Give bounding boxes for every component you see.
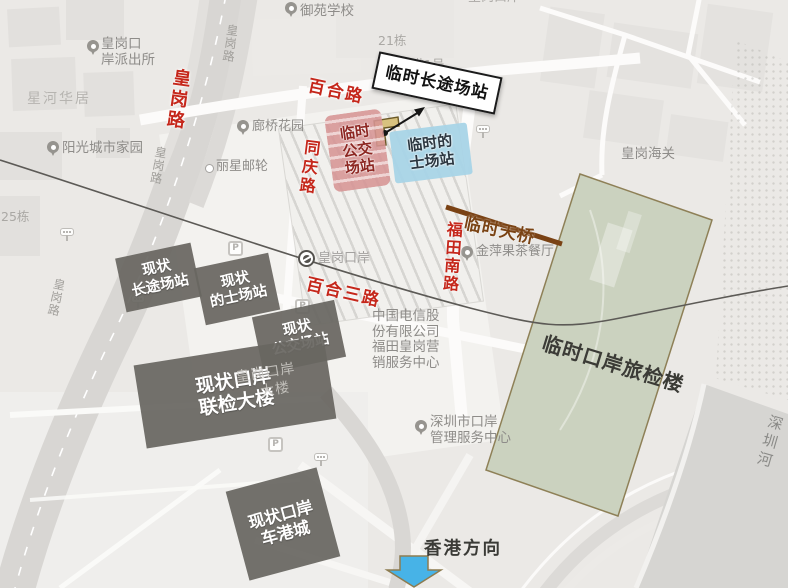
yangguang-label: 阳光城市家园	[62, 140, 143, 156]
current-carport-box: 现状口岸 车港城	[226, 467, 341, 580]
school-pin-icon	[285, 2, 297, 14]
xinghe-label: 星河华居	[27, 91, 91, 108]
port-admin-pin-icon	[415, 420, 427, 432]
temp-taxi-station-box: 临时的 士场站	[389, 122, 473, 183]
huanggang-road-label-gray: 皇岗路	[147, 145, 171, 186]
telecom-line1: 中国电信股	[372, 308, 440, 324]
parking-icon: P	[268, 437, 283, 452]
huanggang-road-label-gray: 皇岗路	[219, 23, 241, 64]
telecom-line2: 份有限公司	[372, 324, 440, 340]
cruise-poi-icon	[205, 164, 214, 173]
telecom-line4: 销服务中心	[372, 355, 440, 371]
temp-longdistance-label: 临时长途场站	[384, 63, 491, 104]
metro-station-label: 皇岗口岸	[318, 251, 370, 267]
temp-bus-station-box: 临时 公交 场站	[324, 108, 391, 192]
restaurant-label: 金萍果茶餐厅	[476, 244, 554, 260]
police-station-line2: 岸派出所	[101, 52, 155, 68]
temp-taxi-line2: 士场站	[409, 150, 456, 173]
lixing-label: 丽星邮轮	[216, 159, 268, 175]
telecom-label: 中国电信股份有限公司福田皇岗营销服务中心	[372, 309, 440, 371]
port-admin-label: 深圳市口岸管理服务中心	[430, 414, 511, 446]
temp-inspection-terminal-label: 临时口岸旅检楼	[539, 327, 688, 398]
shenzhen-river-band	[636, 384, 788, 588]
current-joint-inspection-building-box: 现状口岸 联检大楼	[134, 335, 337, 448]
garden-pin-icon	[237, 120, 249, 132]
residence-pin-icon	[47, 141, 59, 153]
traffic-light-icon	[314, 453, 328, 461]
construction-texture-strip	[700, 40, 788, 400]
hongkong-direction-label: 香港方向	[424, 535, 502, 560]
port-admin-line2: 管理服务中心	[430, 430, 511, 446]
current-longdistance-station-box: 现状 长途场站	[115, 243, 202, 313]
annotated-port-map: 皇岗口岸 御苑学校 21栋 深港1号 皇岗口岸派出所 星河华居 阳光城市家园 2…	[0, 0, 788, 588]
langqiao-label: 廊桥花园	[252, 119, 304, 135]
port-admin-line1: 深圳市口岸	[430, 414, 498, 430]
metro-station-icon	[298, 250, 315, 267]
customs-label: 皇岗海关	[621, 146, 675, 162]
huanggang-road-label-red: 皇岗路	[160, 66, 195, 132]
ramp-roads	[326, 392, 788, 588]
traffic-light-icon	[476, 125, 490, 133]
police-station-line1: 皇岗口	[101, 36, 142, 52]
police-station-pin-icon	[87, 40, 99, 52]
temp-bus-line3: 场站	[344, 157, 376, 179]
school-label: 御苑学校	[300, 3, 354, 19]
parking-icon: P	[228, 241, 243, 256]
building25-label: 25栋	[1, 209, 29, 224]
futian-south-road-label: 福田南路	[437, 220, 466, 293]
river-label: 深圳河	[752, 413, 785, 473]
telecom-line3: 福田皇岗营	[372, 339, 440, 355]
underlying-port-building-line2: 大楼	[259, 380, 291, 400]
huanggang-road-label-gray: 皇岗路	[44, 277, 69, 319]
police-station-label: 皇岗口岸派出所	[101, 36, 155, 69]
hongkong-direction-arrow-icon	[387, 556, 441, 587]
clipped-top-label: 皇岗口岸	[468, 0, 520, 6]
traffic-light-icon	[60, 228, 74, 236]
building21-label: 21栋	[378, 33, 406, 48]
baihe-road-label: 百合路	[306, 71, 367, 107]
